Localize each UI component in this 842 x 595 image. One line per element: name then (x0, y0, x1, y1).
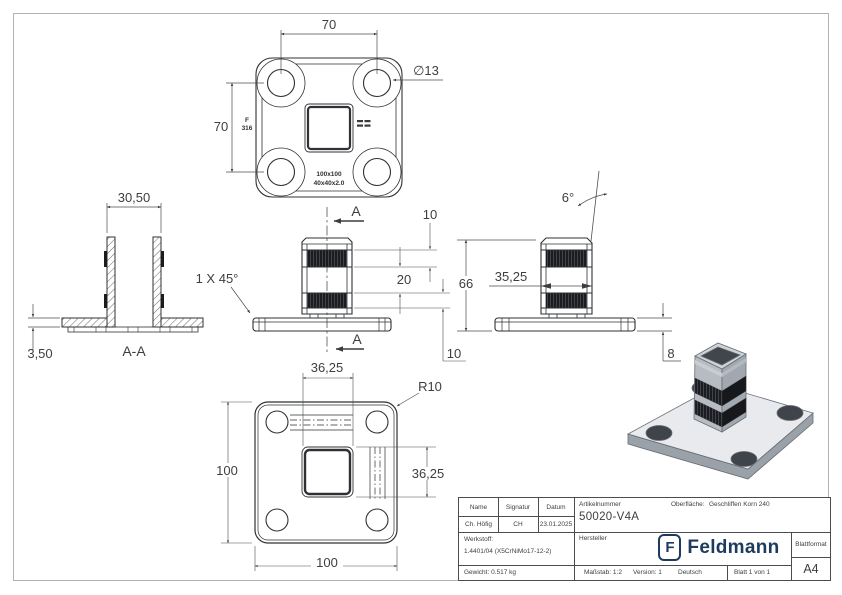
stamp-size-1: 100x100 (316, 171, 342, 178)
surface-value: Geschliffen Korn 240 (709, 501, 770, 508)
title-block: Name Signatur Datum Ch. Höfig CH 23.01.2… (458, 497, 831, 581)
dim-label: 100 (316, 555, 338, 570)
value-date: 23.01.2025 (538, 516, 574, 532)
dim-36-25-top: 36,25 (303, 360, 353, 446)
section-title: A-A (122, 343, 146, 359)
feldmann-logo-text: Feldmann (687, 537, 779, 559)
bottom-view (255, 402, 397, 543)
dim-66: 66 (455, 240, 536, 331)
brand-logo: F Feldmann (649, 532, 789, 563)
article-label: Artikelnummer (579, 501, 621, 508)
stamp-marks (357, 120, 371, 127)
dim-label: 70 (214, 119, 228, 134)
dim-r10: R10 (397, 379, 442, 406)
dim-100-left: 100 (213, 402, 252, 543)
dim-label: 36,25 (412, 466, 445, 481)
surface-label: Oberfläche: (671, 501, 705, 508)
feldmann-logo-icon: F (658, 534, 681, 561)
sheet: Blatt 1 von 1 (734, 565, 770, 580)
iso-view (628, 343, 813, 479)
header-date: Datum (538, 498, 574, 516)
dim-label: 36,25 (311, 360, 344, 375)
dim-8: 8 (637, 303, 681, 361)
side-view (495, 238, 635, 331)
material-value: 1.4401/04 (X5CrNiMo17-12-2) (464, 548, 551, 555)
dim-label: 10 (447, 346, 461, 361)
dim-label: 66 (459, 276, 473, 291)
dim-top-70: 70 (281, 17, 377, 74)
chamfer-label: 1 X 45° (196, 271, 239, 286)
version: Version: 1 (633, 565, 662, 580)
drawing-sheet: F 316 100x100 40x40x2.0 70 ∅13 70 A A (0, 0, 842, 595)
dim-label: 70 (322, 17, 336, 32)
chamfer-note: 1 X 45° (196, 271, 250, 313)
section-label-bottom: A (352, 331, 362, 347)
front-view (253, 238, 391, 331)
stamp-size-2: 40x40x2.0 (314, 180, 345, 187)
article-number: 50020-V4A (579, 511, 639, 523)
top-view: F 316 100x100 40x40x2.0 (242, 58, 402, 197)
dim-label: 100 (216, 463, 238, 478)
value-signature: CH (498, 516, 538, 532)
header-name: Name (459, 498, 498, 516)
dim-label: 8 (667, 346, 674, 361)
stamp-grade-1: F (245, 117, 249, 124)
weight: Gewicht: 0.517 kg (459, 565, 574, 580)
sheet-frame (14, 14, 829, 581)
stamp-grade-2: 316 (242, 125, 253, 132)
language: Deutsch (678, 565, 702, 580)
dim-band-10-top: 10 (423, 207, 437, 282)
dim-label: 6° (562, 190, 574, 205)
bottom-view-dims: 36,25 36,25 R10 100 100 (213, 360, 446, 571)
dim-label: 35,25 (495, 269, 528, 284)
value-name: Ch. Höfig (459, 516, 498, 532)
dim-label: ∅13 (413, 63, 439, 78)
header-signature: Signatur (498, 498, 538, 516)
dim-label: 10 (423, 207, 437, 222)
dim-3-50: 3,50 (27, 304, 60, 361)
dim-band-10-bottom: 10 (443, 279, 466, 361)
scale: Maßstab: 1:2 (584, 565, 622, 580)
dim-label: 20 (397, 272, 411, 287)
manufacturer-label: Hersteller (579, 535, 607, 542)
dim-label: R10 (418, 379, 442, 394)
dim-gap-20: 20 (397, 247, 411, 314)
dim-36-25-right: 36,25 (356, 447, 446, 497)
dim-100-bottom: 100 (255, 546, 397, 571)
section-label-top: A (351, 203, 361, 219)
format-label: Blattformat (791, 532, 831, 557)
material-label: Werkstoff: (464, 536, 493, 543)
dim-label: 30,50 (118, 190, 151, 205)
dim-30-50: 30,50 (107, 190, 161, 233)
dim-angle-6: 6° (562, 171, 607, 241)
front-view-dims: 10 20 10 (354, 207, 466, 361)
section-view: A-A (62, 237, 203, 359)
format-value: A4 (791, 557, 831, 580)
dim-label: 3,50 (27, 346, 52, 361)
